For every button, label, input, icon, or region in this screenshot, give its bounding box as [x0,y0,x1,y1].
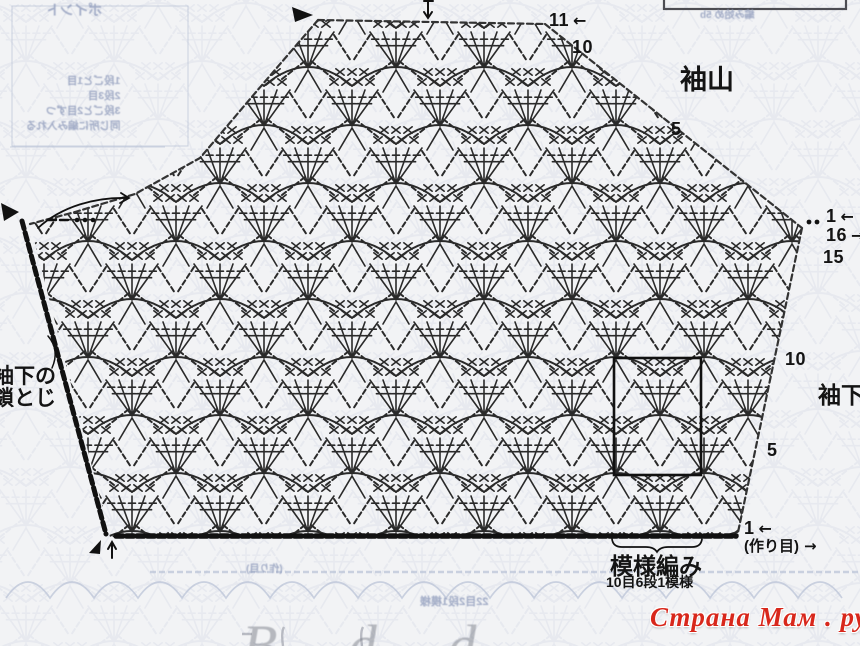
row-marker-cap-5: 5 [671,119,682,140]
row-marker-body-16: 16→ [826,225,860,246]
sleeve-cap-label: 袖山 [680,58,734,97]
row-marker-cap-10: 10 [572,37,593,58]
arrow-left-icon: ← [841,207,855,226]
arrow-left-icon: ← [573,11,587,30]
row-marker-body-15: 15 [823,247,844,268]
ghost-box-caption: 編み始め 5b [700,6,754,21]
row-marker-body-5: 5 [767,440,778,461]
ghost-heading: ポイント [46,0,102,20]
seam-label: 袖下の 鎖とじ [0,366,56,410]
arrow-right-icon: → [851,226,860,245]
row-marker-cap-11: 11← [549,10,587,31]
ghost-cursive: B d d [242,612,504,646]
scanned-crochet-chart-page: .ch{stroke-dasharray:5 3;stroke-width:2;… [0,0,860,646]
row-marker-body-1-top: 1← [826,206,854,227]
ghost-notes: 1段ごと1目 2段3目 3段ごと2目ずつ 同じ所に編み入れる [26,74,121,134]
watermark: Страна Мам . ру [650,602,860,633]
ghost-snippet-left: (作り目) [246,560,283,575]
stitch-pattern-repeat-label: 10目6段1模様 [606,572,693,592]
foundation-label: (作り目)→ [744,535,817,556]
sleeve-side-label: 袖下 [818,376,860,410]
arrow-right-icon: → [804,537,817,555]
row-marker-body-10: 10 [785,349,806,370]
ghost-snippet-right: 22目2段1模様 [420,593,488,609]
